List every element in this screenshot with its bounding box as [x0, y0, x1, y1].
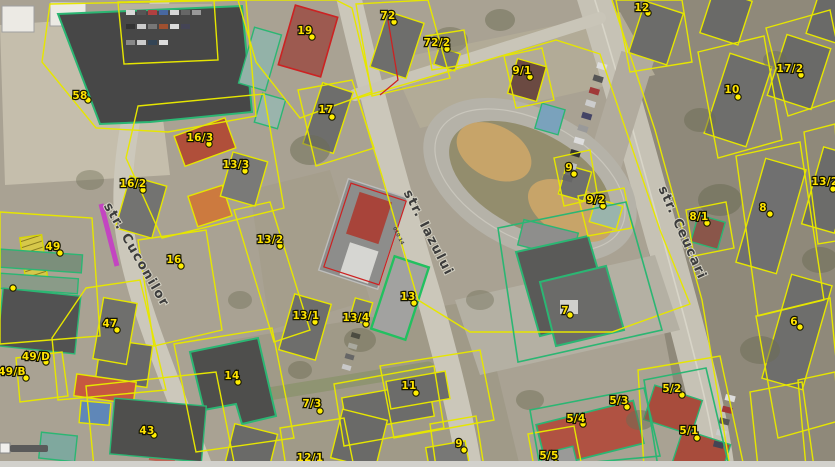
parcel-label-text: 19 [297, 25, 312, 37]
parcel-label-text: 5/3 [609, 395, 628, 407]
parcel-point-marker[interactable] [10, 285, 16, 291]
parcel-label-text: 58 [72, 90, 87, 102]
parcel-label-text: 5/2 [662, 383, 681, 395]
parcel-label-text: 49 [45, 241, 60, 253]
parcel-label-text: 13/4 [343, 312, 370, 324]
parcel-label-text: 10 [724, 84, 739, 96]
parcel-label-text: 16/2 [120, 178, 147, 190]
bottom-edge-strip [0, 461, 835, 467]
parcel-point-marker[interactable] [767, 211, 773, 217]
parcel-label-text: 9/1 [512, 65, 531, 77]
parcel-label-text: 43 [139, 425, 154, 437]
parcel-label-text: 5/1 [679, 425, 698, 437]
parcel-label-text: 12 [634, 2, 649, 14]
parcel-label-text: 17/2 [777, 63, 804, 75]
parcel-label-text: 49/D [22, 351, 50, 363]
parcel-label-text: 47 [102, 318, 117, 330]
parcel-label-text: 9 [565, 162, 573, 174]
parcel-label-43[interactable]: 43 [139, 425, 157, 438]
parcel-label-text: 11 [401, 380, 416, 392]
aerial-map-svg: str. Cuconilorstr. Iazuluistr. Ceucari01… [0, 0, 835, 467]
parcel-label-text: 72 [380, 10, 395, 22]
parcel-label-text: 6 [790, 316, 798, 328]
parcel-label-text: 13/1 [293, 310, 320, 322]
parcel-label-text: 49/B [0, 366, 26, 378]
parcel-label-text: 13/3 [223, 159, 250, 171]
parcel-label-text: 13/2 [257, 234, 284, 246]
map-canvas[interactable]: str. Cuconilorstr. Iazuluistr. Ceucari01… [0, 0, 835, 467]
parcel-label-text: 13/2 [812, 176, 835, 188]
parcel-label-text: 8 [759, 202, 767, 214]
parcel-label-text: 14 [224, 370, 239, 382]
parcel-label-text: 5/4 [566, 413, 585, 425]
parcel-label-text: 7 [561, 305, 569, 317]
parcel-label-text: 72/2 [424, 37, 451, 49]
parcel-label-text: 13 [400, 291, 415, 303]
parcel-label-text: 9 [455, 438, 463, 450]
parcel-label-text: 16/3 [187, 132, 214, 144]
parcel-label-text: 17 [318, 104, 333, 116]
parcel-label-text: 16 [166, 254, 181, 266]
parcel-label-text: 9/2 [586, 194, 605, 206]
parcel-label-text: 7/3 [302, 398, 321, 410]
parcel-label-text: 8/1 [689, 211, 708, 223]
